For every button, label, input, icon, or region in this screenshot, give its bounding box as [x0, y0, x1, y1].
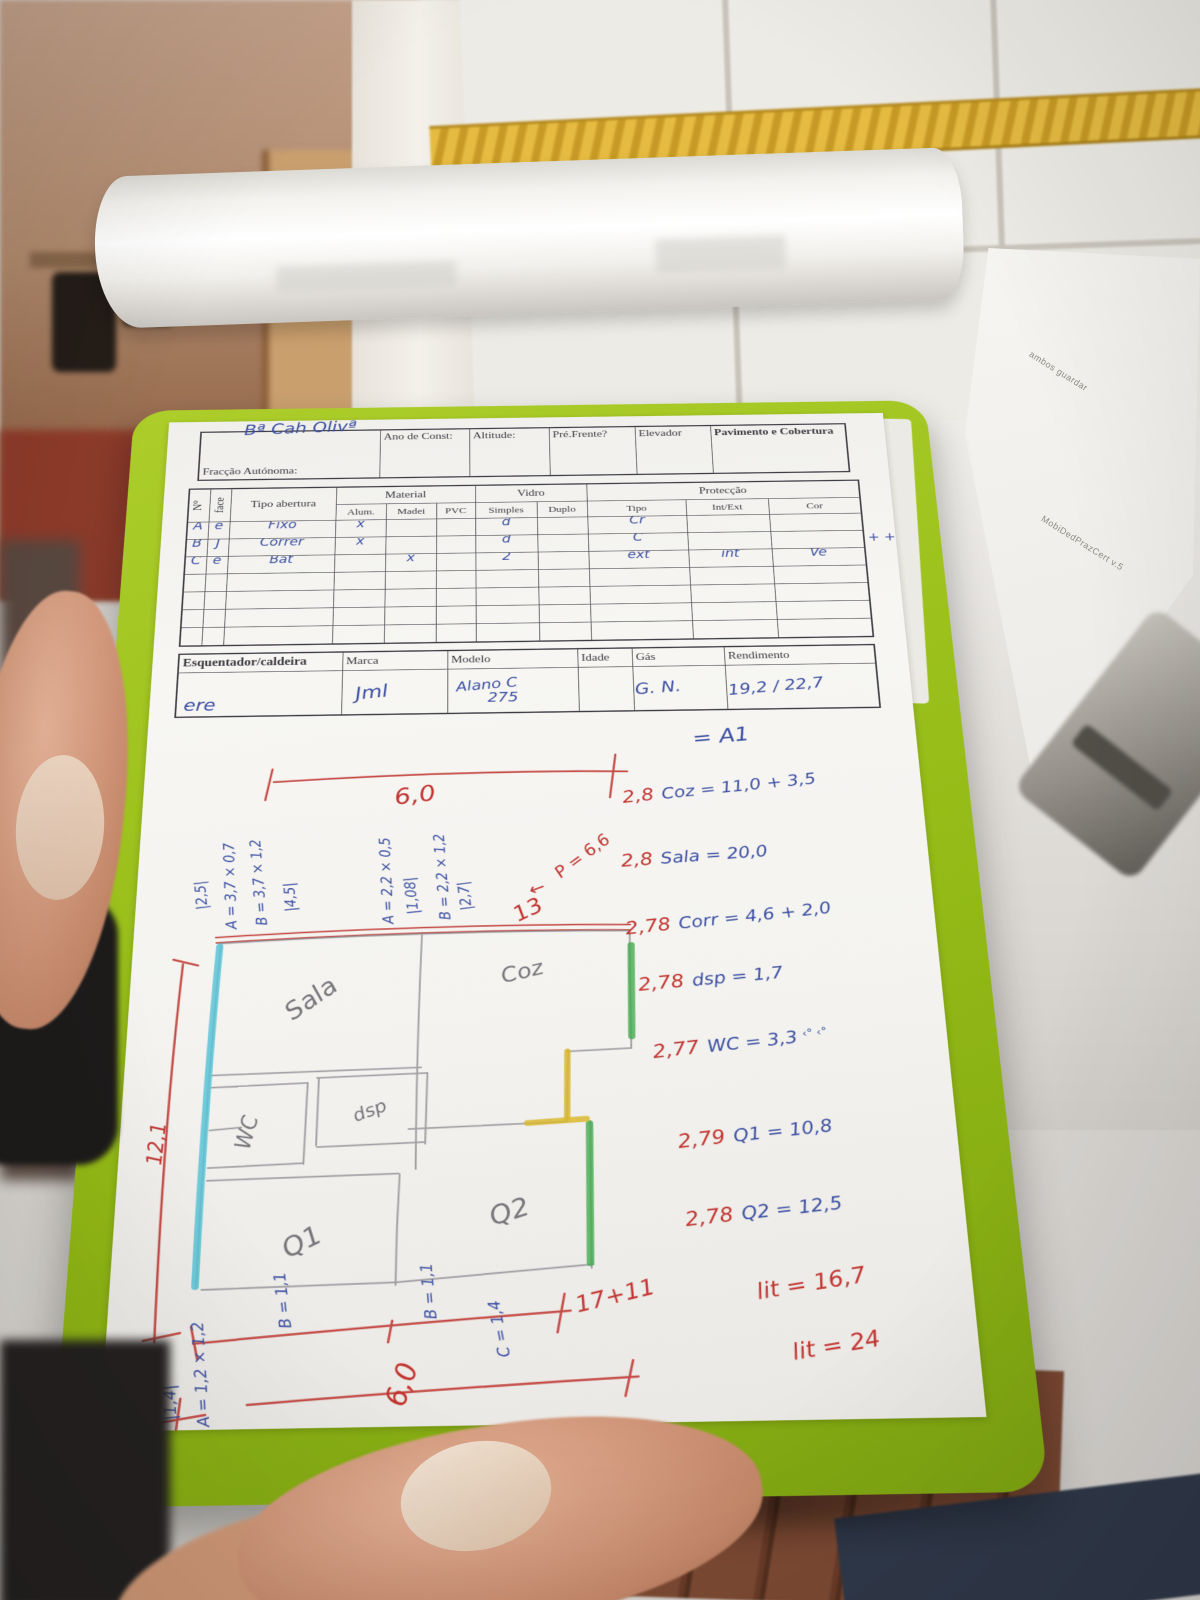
- calc-marks: ‹° ‹°: [801, 1026, 828, 1041]
- dim-left: 12,1: [142, 1122, 171, 1165]
- rolled-page: [93, 147, 966, 329]
- survey-sheet: Bª Cah Olivª Fracção Autónoma: Ano de Co…: [100, 413, 987, 1432]
- dim-top: 6,0: [393, 781, 438, 811]
- show-through-mark: [276, 261, 457, 293]
- device-slot: [1071, 723, 1173, 811]
- annotation-area: |4,5|: [281, 882, 301, 912]
- calc-coef: 2,78: [637, 971, 686, 995]
- green-clipboard: Bª Cah Olivª Fracção Autónoma: Ano de Co…: [49, 400, 1049, 1508]
- calc-coef: 2,8: [620, 850, 654, 872]
- annotation-area: |2,5|: [192, 880, 212, 911]
- calc-coef: 2,8: [621, 785, 655, 807]
- wrist-shadow: [0, 1340, 170, 1600]
- show-through-mark: [655, 235, 786, 274]
- annotation-area: A = 3,7 × 0,7: [221, 842, 242, 930]
- side-paper-text: ambos guardar: [1027, 349, 1089, 393]
- photo-scene: ambos guardar MobiDedPrazCert v.5 Bª Cah…: [0, 0, 1200, 1600]
- side-paper-text: MobiDedPrazCert v.5: [1040, 514, 1126, 573]
